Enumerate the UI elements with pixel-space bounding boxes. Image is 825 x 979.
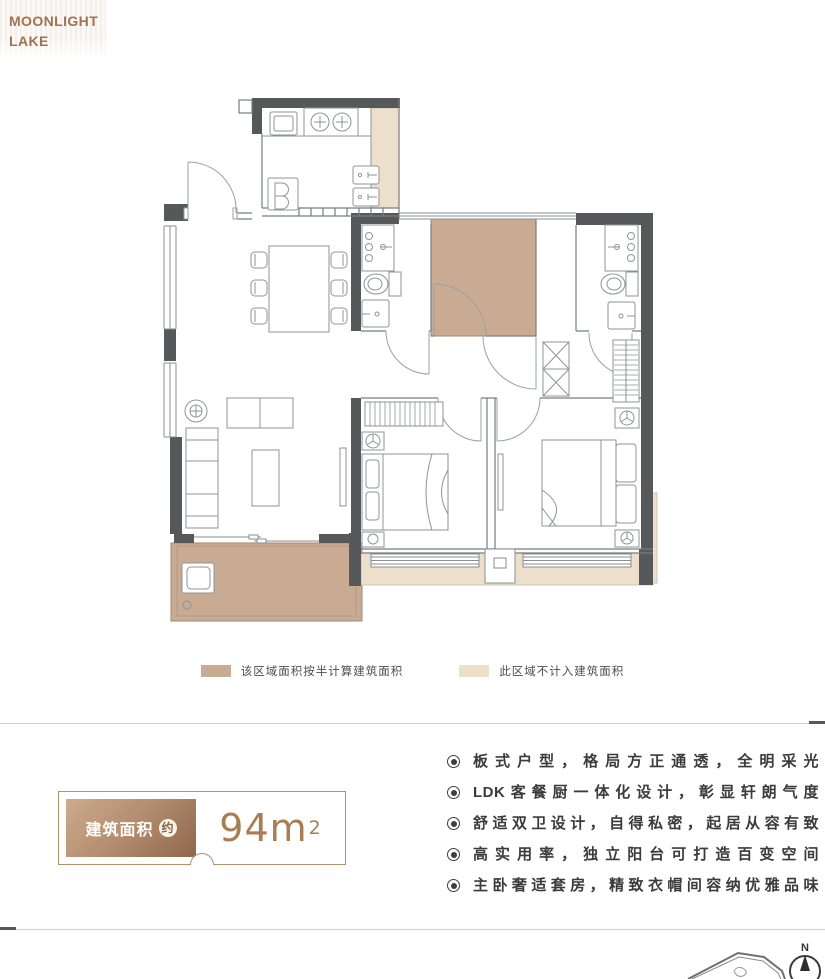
ac-platform: [485, 549, 515, 583]
floor-plan: [149, 86, 701, 648]
hall-door: [483, 336, 536, 389]
feature-item: 主卧奢适套房，精致衣帽间容纳优雅品味: [447, 876, 819, 896]
sofa: [186, 428, 218, 528]
feature-list: 板式户型，格局方正通透，全明采光 LDK客餐厨一体化设计，彰显轩朗气度 舒适双卫…: [447, 752, 819, 907]
stove: [304, 108, 358, 136]
living-room: [185, 398, 346, 528]
brand-logo: MOONLIGHT LAKE: [0, 0, 106, 64]
bullet-icon: [447, 786, 460, 799]
wardrobe: [365, 402, 443, 426]
excluded-area-label: 此区域不计入建筑面积: [499, 663, 624, 679]
half-area-swatch: [201, 665, 231, 677]
legend-item-half: 该区域面积按半计算建筑面积: [201, 663, 404, 679]
divider-top: [0, 723, 825, 724]
area-value: 94m2: [196, 792, 345, 864]
dining-area: [251, 246, 347, 332]
half-area-label: 该区域面积按半计算建筑面积: [241, 663, 404, 679]
area-badge-label-panel: 建筑面积 约: [66, 799, 196, 857]
site-plan-partial: [686, 947, 788, 979]
bedroom-1: [362, 402, 448, 547]
coffee-table: [252, 450, 279, 506]
bath1-door: [386, 331, 429, 374]
divider-accent: [0, 927, 16, 930]
compass-north-label: N: [789, 942, 821, 954]
approx-mark: 约: [159, 819, 177, 837]
excluded-area-swatch: [459, 665, 489, 677]
listing-poster: { "logo": { "line1": "MOONLIGHT", "line2…: [0, 0, 825, 979]
feature-item: LDK客餐厨一体化设计，彰显轩朗气度: [447, 783, 819, 803]
vanity: [605, 225, 638, 271]
area-label: 建筑面积: [85, 816, 153, 840]
toilet: [626, 272, 638, 296]
bullet-icon: [447, 848, 460, 861]
area-badge: 建筑面积 约 94m2: [58, 791, 346, 865]
hallway: [543, 340, 639, 402]
feature-item: 高实用率，独立阳台可打造百变空间: [447, 845, 819, 865]
bed: [542, 440, 616, 526]
kitchen: [262, 108, 379, 210]
bathroom-2: [601, 225, 638, 329]
entry-door: [188, 162, 236, 213]
tv-panel: [340, 448, 346, 506]
compass: N: [789, 942, 821, 979]
master-door: [497, 398, 540, 441]
feature-item: 板式户型，格局方正通透，全明采光: [447, 752, 819, 772]
bedroom1-door: [438, 398, 481, 441]
compass-needle: [800, 955, 810, 971]
brand-logo-line1: MOONLIGHT: [9, 12, 106, 32]
bullet-icon: [447, 817, 460, 830]
bullet-icon: [447, 755, 460, 768]
vanity: [362, 225, 394, 271]
entry-door-frame: [184, 208, 188, 219]
legend-item-excluded: 此区域不计入建筑面积: [459, 663, 624, 679]
brand-logo-line2: LAKE: [9, 32, 106, 52]
toilet: [389, 272, 401, 296]
tv-panel: [498, 454, 503, 510]
compass-dial: [789, 955, 821, 979]
feature-item: 舒适双卫设计，自得私密，起居从容有致: [447, 814, 819, 834]
dining-table: [269, 246, 329, 332]
divider-accent: [809, 721, 825, 724]
master-bedroom: [498, 408, 639, 547]
legend: 该区域面积按半计算建筑面积 此区域不计入建筑面积: [0, 663, 825, 679]
bullet-icon: [447, 879, 460, 892]
bathroom-1: [362, 225, 401, 327]
divider-bottom: [0, 929, 825, 930]
